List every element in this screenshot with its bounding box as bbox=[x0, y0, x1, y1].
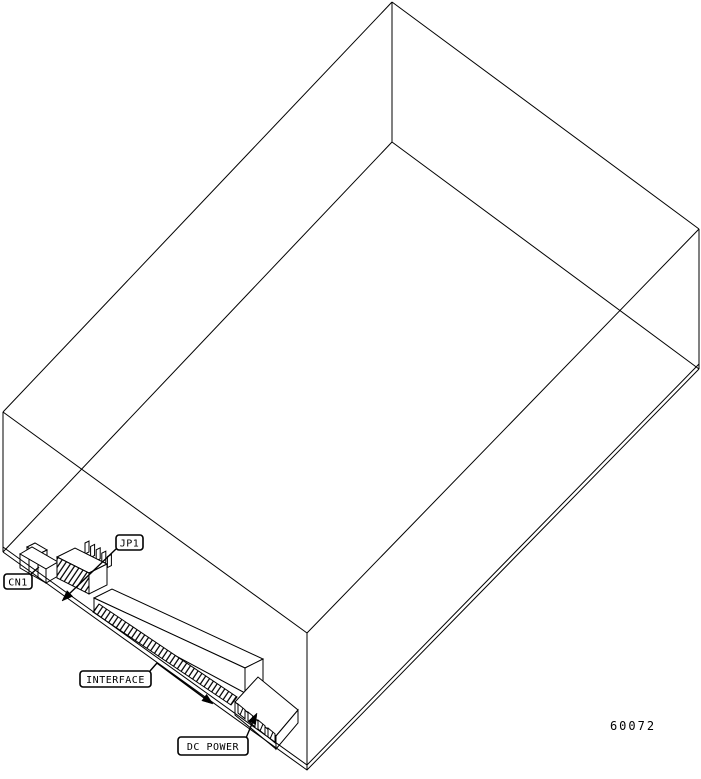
interface-label: INTERFACE bbox=[80, 671, 151, 687]
dc-power-label-text: DC POWER bbox=[187, 742, 240, 753]
jp1-label: JP1 bbox=[116, 535, 143, 550]
cn1-label-text: CN1 bbox=[8, 578, 28, 589]
cn1-label: CN1 bbox=[4, 574, 32, 589]
chassis-wireframe bbox=[3, 2, 699, 770]
drive-isometric-figure: CN1 JP1 INTERFACE DC POWER 60072 bbox=[0, 0, 701, 779]
interface-label-text: INTERFACE bbox=[86, 675, 145, 686]
dc-power-label: DC POWER bbox=[178, 737, 248, 755]
jp1-connector bbox=[57, 541, 111, 594]
figure-number: 60072 bbox=[610, 719, 656, 733]
jp1-label-text: JP1 bbox=[120, 539, 140, 550]
technical-line-drawing: CN1 JP1 INTERFACE DC POWER 60072 bbox=[0, 0, 701, 779]
